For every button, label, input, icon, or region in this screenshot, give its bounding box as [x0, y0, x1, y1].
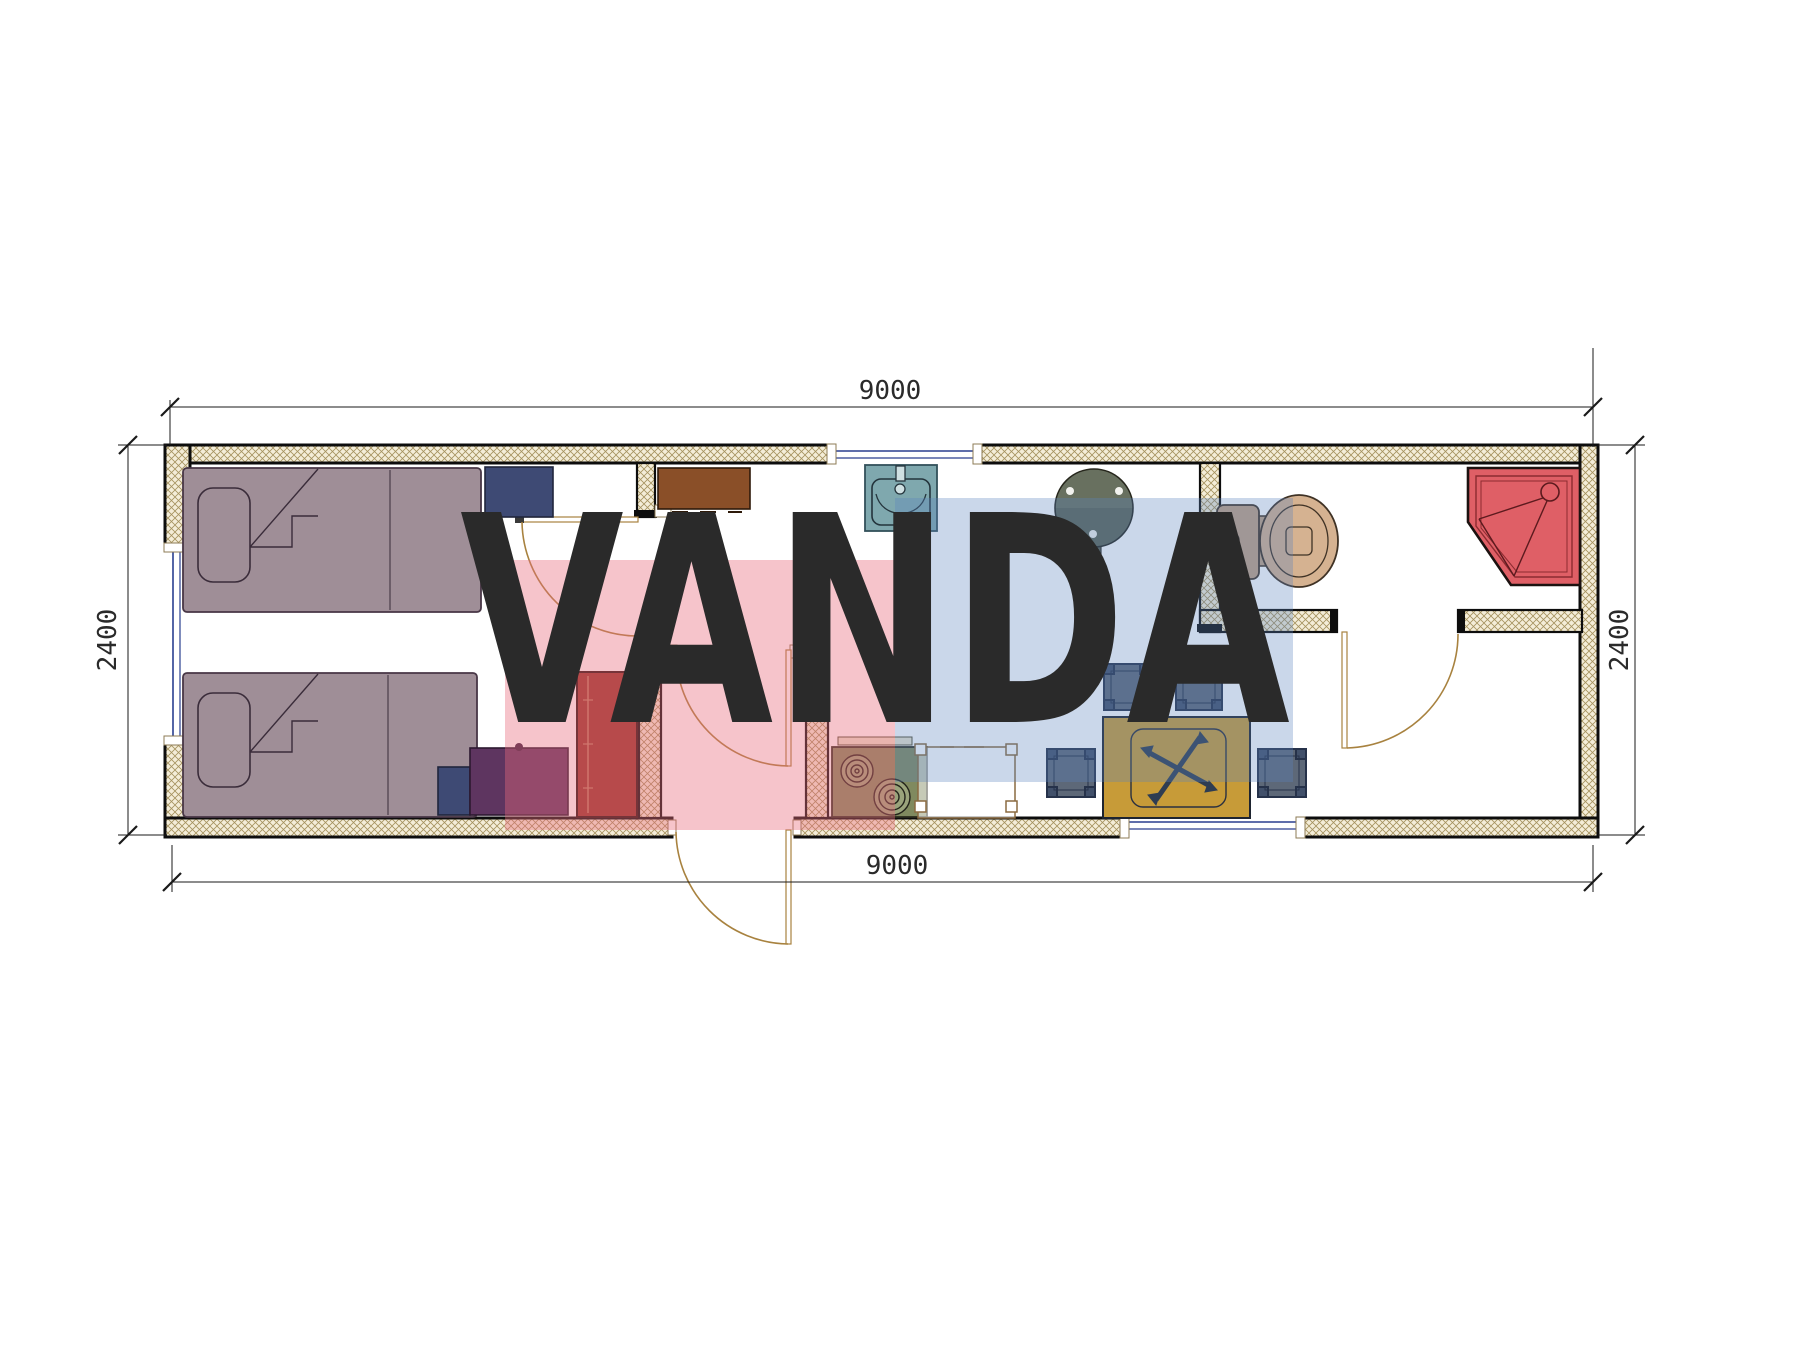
floor-plan-page: 9000 9000 2400 2400 VANDA — [0, 0, 1800, 1350]
dim-label-top: 9000 — [859, 376, 922, 406]
watermark: VANDA — [460, 455, 1293, 830]
watermark-text: VANDA — [460, 455, 1292, 790]
bathroom-wall-bottom-right — [1458, 610, 1582, 632]
bathroom-door-swing-arc — [1347, 634, 1458, 748]
wall-cap — [1330, 610, 1337, 632]
bed-2 — [183, 673, 477, 817]
dim-label-right: 2400 — [1605, 609, 1635, 672]
entry-door-swing-arc — [676, 832, 788, 944]
dim-label-bottom: 9000 — [866, 851, 929, 881]
bathroom-door — [1342, 632, 1458, 748]
wall-right-segment — [1580, 445, 1598, 837]
dim-label-left: 2400 — [93, 609, 123, 672]
wall-cap — [1458, 610, 1465, 632]
entry-exterior-door — [676, 830, 791, 944]
pillow — [198, 693, 250, 787]
wall-bottom-right-segment — [1300, 818, 1598, 837]
window-bottom — [1120, 817, 1305, 838]
pillow — [198, 488, 250, 582]
bed-1 — [183, 468, 481, 612]
shower-tray — [1468, 468, 1580, 585]
floor-plan-canvas: 9000 9000 2400 2400 VANDA — [0, 0, 1800, 1350]
